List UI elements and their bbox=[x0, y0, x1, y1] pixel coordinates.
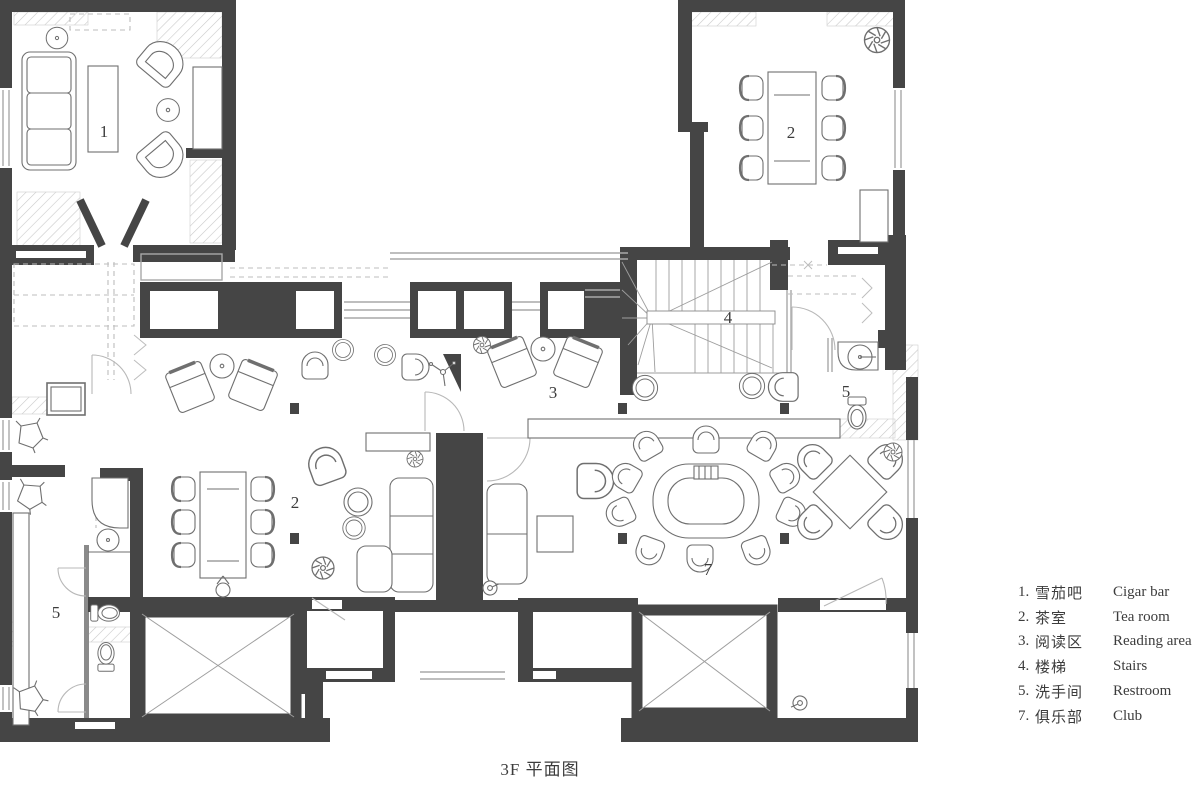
ceiling-fan-icon bbox=[884, 443, 902, 461]
egg-chair bbox=[577, 463, 613, 498]
legend-row: 2. 茶室 Tea room bbox=[1018, 605, 1192, 630]
ring-table bbox=[632, 375, 657, 400]
tea-room-cabinet bbox=[860, 190, 888, 242]
legend: 1. 雪茄吧 Cigar bar 2. 茶室 Tea room 3. 阅读区 R… bbox=[1018, 580, 1192, 729]
ring-table bbox=[333, 340, 354, 361]
elevator-shafts bbox=[140, 610, 772, 719]
club-oval-table bbox=[653, 464, 759, 538]
stairs-treads bbox=[622, 260, 790, 373]
lounge-chair bbox=[553, 335, 604, 388]
round-side-table bbox=[46, 27, 68, 49]
tub-chair bbox=[302, 352, 328, 379]
lounge-chair bbox=[487, 335, 538, 388]
toilet-icon bbox=[91, 605, 120, 621]
cigar-bar-cabinet bbox=[193, 67, 222, 149]
room-label-tea-room-top: 2 bbox=[787, 123, 796, 142]
ceiling-fan-icon bbox=[407, 451, 423, 467]
legend-en-label: Restroom bbox=[1113, 683, 1171, 700]
ring-table bbox=[343, 517, 365, 539]
legend-row: 4. 楼梯 Stairs bbox=[1018, 654, 1192, 679]
pendant-light-icon bbox=[216, 576, 230, 597]
cigar-bar-armchair bbox=[134, 129, 191, 185]
legend-row: 5. 洗手间 Restroom bbox=[1018, 679, 1192, 704]
round-table bbox=[531, 337, 555, 361]
ring-table bbox=[375, 345, 396, 366]
legend-en-label: Club bbox=[1113, 708, 1142, 725]
restroom-right-fixtures bbox=[838, 342, 878, 370]
stool bbox=[12, 476, 52, 518]
room-label-stairs: 4 bbox=[724, 308, 733, 327]
room-label-reading-area: 3 bbox=[549, 383, 558, 402]
legend-zh-label: 洗手间 bbox=[1035, 681, 1113, 702]
club-coffee-table bbox=[537, 516, 573, 552]
room-label-club: 7 bbox=[704, 560, 713, 579]
room-label-restroom-left: 5 bbox=[52, 603, 61, 622]
legend-zh-label: 雪茄吧 bbox=[1035, 582, 1113, 603]
toilet-icon bbox=[848, 397, 866, 429]
legend-number: 2. bbox=[1018, 609, 1035, 626]
legend-en-label: Reading area bbox=[1113, 633, 1192, 650]
legend-number: 5. bbox=[1018, 683, 1035, 700]
legend-zh-label: 阅读区 bbox=[1035, 631, 1113, 652]
console-table bbox=[366, 433, 430, 451]
legend-number: 7. bbox=[1018, 708, 1035, 725]
door-lock-icon bbox=[791, 694, 809, 712]
toilet-icon bbox=[98, 643, 114, 672]
room-label-tea-room-left: 2 bbox=[291, 493, 300, 512]
legend-row: 3. 阅读区 Reading area bbox=[1018, 630, 1192, 655]
legend-zh-label: 楼梯 bbox=[1035, 656, 1113, 677]
legend-en-label: Tea room bbox=[1113, 609, 1170, 626]
legend-row: 7. 俱乐部 Club bbox=[1018, 704, 1192, 729]
legend-number: 1. bbox=[1018, 584, 1035, 601]
stool bbox=[16, 418, 48, 453]
cigar-bar-sofa bbox=[22, 52, 76, 170]
sideboard bbox=[528, 419, 840, 438]
ceiling-fan-icon bbox=[312, 557, 334, 579]
tub-chair bbox=[402, 354, 429, 380]
lounge-chair bbox=[228, 358, 279, 411]
room-label-cigar-bar: 1 bbox=[100, 122, 109, 141]
tea-room-left-table bbox=[200, 472, 246, 578]
legend-zh-label: 俱乐部 bbox=[1035, 706, 1113, 727]
legend-en-label: Cigar bar bbox=[1113, 584, 1169, 601]
ceiling-fan-icon bbox=[865, 28, 890, 53]
club-sofa bbox=[487, 484, 527, 584]
round-side-table bbox=[157, 99, 180, 122]
legend-en-label: Stairs bbox=[1113, 658, 1147, 675]
round-table bbox=[210, 354, 234, 378]
ring-table bbox=[344, 488, 372, 516]
legend-row: 1. 雪茄吧 Cigar bar bbox=[1018, 580, 1192, 605]
floor-plan-page: 1 2 2 3 4 5 5 7 1. 雪茄吧 Cigar bar 2. 茶室 T… bbox=[0, 0, 1200, 789]
drawing-title: 3F 平面图 bbox=[410, 755, 670, 780]
barrel-chair bbox=[304, 443, 348, 488]
legend-number: 3. bbox=[1018, 633, 1035, 650]
legend-number: 4. bbox=[1018, 658, 1035, 675]
coat-stand-icon bbox=[430, 362, 456, 387]
legend-zh-label: 茶室 bbox=[1035, 607, 1113, 628]
entry-funnel-walls bbox=[80, 200, 146, 246]
lounge-chair bbox=[165, 360, 216, 413]
room-label-restroom-right: 5 bbox=[842, 382, 851, 401]
tub-chair bbox=[768, 373, 798, 402]
ring-table bbox=[739, 373, 764, 398]
